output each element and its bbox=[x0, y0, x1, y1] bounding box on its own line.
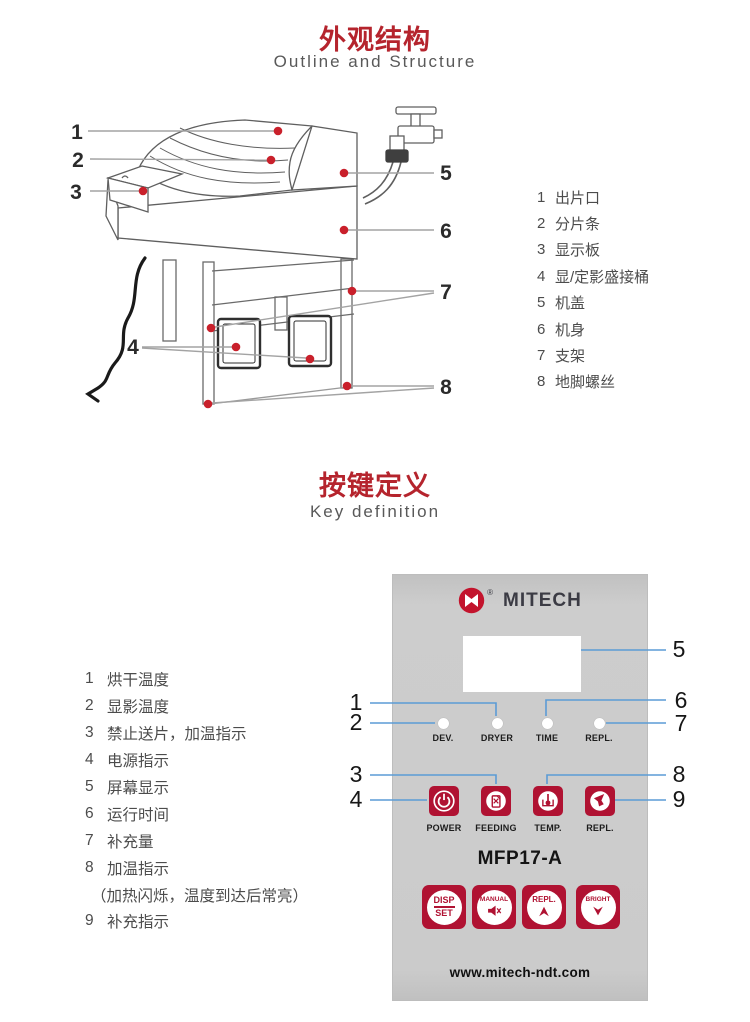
legend-item: 8地脚螺丝 bbox=[537, 369, 649, 395]
definition-number: 9 bbox=[85, 912, 99, 930]
definition-number: 1 bbox=[85, 670, 99, 688]
legend-item-label: 机身 bbox=[555, 319, 585, 340]
key-definition-item: 4电源指示 bbox=[85, 747, 308, 774]
definition-label: 补充指示 bbox=[107, 910, 169, 932]
definition-label: 显影温度 bbox=[107, 695, 169, 717]
legend-item-label: 显/定影盛接桶 bbox=[555, 266, 649, 287]
key-definition-item: 1烘干温度 bbox=[85, 666, 308, 693]
disp-set-line2: SET bbox=[435, 909, 453, 918]
legend-list: 1出片口 2分片条 3显示板 4显/定影盛接桶 5机盖 6机身 7支架 8地脚螺… bbox=[537, 184, 649, 395]
definition-number: 5 bbox=[85, 778, 99, 796]
disp-set-button: DISP SET bbox=[422, 885, 466, 929]
callout-number: 8 bbox=[667, 763, 691, 786]
definition-label: 运行时间 bbox=[107, 803, 169, 825]
definition-label: 烘干温度 bbox=[107, 668, 169, 690]
legend-item-label: 出片口 bbox=[555, 187, 600, 208]
legend-item-number: 6 bbox=[537, 321, 552, 338]
legend-item-number: 4 bbox=[537, 268, 552, 285]
legend-item: 4显/定影盛接桶 bbox=[537, 263, 649, 289]
callout-number: 8 bbox=[440, 376, 452, 399]
legend-item-label: 显示板 bbox=[555, 239, 600, 260]
callout-number: 7 bbox=[669, 712, 693, 735]
website-text: www.mitech-ndt.com bbox=[393, 965, 647, 980]
definition-label: 补充量 bbox=[107, 830, 154, 852]
speaker-mute-icon bbox=[487, 905, 502, 917]
definition-number: 8 bbox=[85, 859, 99, 877]
brand-text: MITECH bbox=[503, 590, 582, 612]
callout-number: 4 bbox=[127, 336, 139, 359]
definition-label: （加热闪烁，温度到达后常亮） bbox=[91, 884, 308, 906]
callout-number: 3 bbox=[344, 763, 368, 786]
key-definition-list: 1烘干温度 2显影温度 3禁止送片，加温指示 4电源指示 5屏幕显示 6运行时间… bbox=[85, 666, 308, 935]
callout-number: 9 bbox=[667, 788, 691, 811]
legend-item-number: 5 bbox=[537, 294, 552, 311]
legend-item-label: 机盖 bbox=[555, 292, 585, 313]
legend-item-number: 7 bbox=[537, 347, 552, 364]
keys-section-subtitle: Key definition bbox=[0, 502, 750, 522]
panel-callout-lines bbox=[340, 630, 710, 825]
callout-number: 5 bbox=[667, 638, 691, 661]
callout-number: 2 bbox=[72, 149, 84, 172]
definition-number: 4 bbox=[85, 751, 99, 769]
key-definition-item: 2显影温度 bbox=[85, 693, 308, 720]
legend-item: 2分片条 bbox=[537, 210, 649, 236]
repl-function-button: REPL. bbox=[522, 885, 566, 929]
down-arrow-icon bbox=[590, 905, 606, 917]
repl-label: REPL. bbox=[532, 896, 556, 904]
manual-button: MANUAL bbox=[472, 885, 516, 929]
mitech-logo-icon bbox=[458, 587, 485, 614]
definition-label: 禁止送片，加温指示 bbox=[107, 722, 247, 744]
faucet bbox=[363, 107, 442, 204]
disp-set-line1: DISP bbox=[433, 896, 454, 905]
legend-item: 7支架 bbox=[537, 342, 649, 368]
key-definition-item: 3禁止送片，加温指示 bbox=[85, 720, 308, 747]
legend-item-label: 分片条 bbox=[555, 213, 600, 234]
machine-diagram: 1 2 3 4 5 6 7 8 bbox=[60, 98, 480, 418]
power-cord bbox=[88, 258, 145, 401]
key-definition-item: 9补充指示 bbox=[85, 908, 308, 935]
definition-number: 2 bbox=[85, 697, 99, 715]
key-definition-note: （加热闪烁，温度到达后常亮） bbox=[85, 881, 308, 908]
key-definition-item: 7补充量 bbox=[85, 827, 308, 854]
callout-number: 3 bbox=[70, 181, 82, 204]
keys-section-title: 按键定义 bbox=[0, 464, 750, 503]
legend-item: 5机盖 bbox=[537, 290, 649, 316]
manual-page: 外观结构 Outline and Structure bbox=[0, 0, 750, 1022]
key-definition-item: 6运行时间 bbox=[85, 800, 308, 827]
callout-number: 2 bbox=[344, 711, 368, 734]
callout-number: 7 bbox=[440, 281, 452, 304]
brand-logo: ® MITECH bbox=[393, 587, 647, 614]
outline-section-subtitle: Outline and Structure bbox=[0, 52, 750, 72]
legend-item: 1出片口 bbox=[537, 184, 649, 210]
model-number: MFP17-A bbox=[393, 848, 647, 870]
definition-number: 3 bbox=[85, 724, 99, 742]
definition-number: 7 bbox=[85, 832, 99, 850]
legend-item-number: 2 bbox=[537, 215, 552, 232]
callout-number: 1 bbox=[71, 121, 83, 144]
bright-label: BRIGHT bbox=[586, 897, 611, 904]
callout-number: 4 bbox=[344, 788, 368, 811]
registered-mark: ® bbox=[487, 588, 493, 597]
legend-item: 6机身 bbox=[537, 316, 649, 342]
definition-number: 6 bbox=[85, 805, 99, 823]
callout-number: 6 bbox=[669, 689, 693, 712]
definition-label: 屏幕显示 bbox=[107, 776, 169, 798]
legend-item: 3显示板 bbox=[537, 237, 649, 263]
definition-label: 电源指示 bbox=[107, 749, 169, 771]
callout-number: 6 bbox=[440, 220, 452, 243]
legend-item-number: 1 bbox=[537, 189, 552, 206]
definition-label: 加温指示 bbox=[107, 857, 169, 879]
up-arrow-icon bbox=[536, 905, 552, 918]
manual-label: MANUAL bbox=[480, 897, 508, 904]
legend-item-number: 3 bbox=[537, 241, 552, 258]
legend-item-label: 支架 bbox=[555, 345, 585, 366]
legend-item-number: 8 bbox=[537, 373, 552, 390]
legend-item-label: 地脚螺丝 bbox=[555, 371, 615, 392]
bright-button: BRIGHT bbox=[576, 885, 620, 929]
key-definition-item: 5屏幕显示 bbox=[85, 774, 308, 801]
key-definition-item: 8加温指示 bbox=[85, 854, 308, 881]
callout-number: 5 bbox=[440, 162, 452, 185]
